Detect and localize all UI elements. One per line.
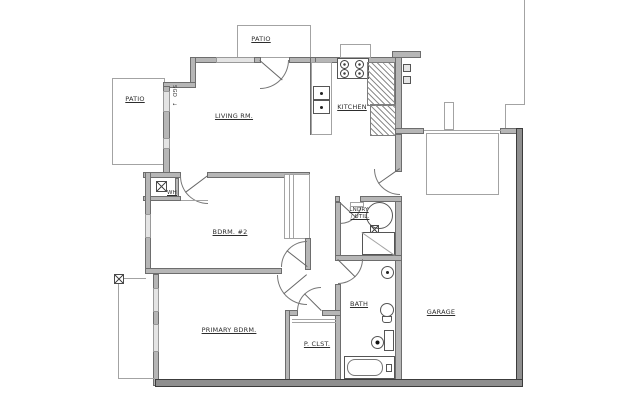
kitchen-sink-icon <box>313 86 330 100</box>
electrical-meter-icon <box>114 274 124 284</box>
stove-burner-icon <box>355 69 364 78</box>
yard-line-h <box>124 278 146 279</box>
bedroom2-label: BDRM. #2 <box>213 228 248 236</box>
patio-door-label: SGD <box>171 85 177 97</box>
primary-bedroom-label: PRIMARY BDRM. <box>202 326 257 334</box>
floor-plan-canvas: PATIO PATIO SGD ↓ LIVING RM. KITCHEN GAR… <box>0 0 626 405</box>
patio-top-outline <box>237 25 311 58</box>
patio-left-outline <box>112 78 165 165</box>
property-line-step-h <box>505 104 525 105</box>
patio-slider-window-a <box>163 91 170 112</box>
bath-label: BATH <box>350 300 368 308</box>
toilet-tank-icon <box>382 316 392 323</box>
primary-window-b <box>153 324 159 352</box>
closet-slider-track <box>293 175 294 238</box>
utility-meter-icon <box>403 76 411 84</box>
garage-door-header <box>424 130 501 131</box>
kitchen-label: KITCHEN <box>337 103 367 111</box>
pclst-shelf-line <box>292 319 336 320</box>
garage-label: GARAGE <box>427 308 455 316</box>
pclst-shelf-line <box>292 322 336 323</box>
water-heater-unit-icon <box>156 181 167 192</box>
yard-line-v <box>118 284 119 379</box>
bedroom2-window <box>145 214 151 238</box>
laundry-label-line2: / UTIL. <box>351 214 370 220</box>
east-exterior-wall <box>516 128 523 387</box>
bedroom2-closet <box>284 174 310 239</box>
vanity-sink-icon <box>371 336 384 349</box>
toilet-bowl-icon <box>380 303 394 317</box>
patio-left-label: PATIO <box>125 95 144 103</box>
stove-burner-icon <box>355 60 364 69</box>
stove-burner-icon <box>340 60 349 69</box>
garage-west-wall-lower <box>395 196 402 386</box>
laundry-label-line1: LNDRY <box>349 207 368 213</box>
garage-post-outline <box>444 102 454 130</box>
yard-line-bottom <box>118 378 155 379</box>
stove-burner-icon <box>340 69 349 78</box>
bath-west-wall <box>335 284 341 386</box>
bathtub-basin-icon <box>347 359 383 376</box>
laundry-west-wall <box>335 202 341 258</box>
utility-meter-icon <box>403 64 411 72</box>
pclst-west-wall <box>285 310 290 386</box>
property-line-step-v <box>505 104 506 130</box>
kitchen-sink-icon <box>313 100 330 114</box>
bath-vanity-icon <box>384 330 394 351</box>
living-room-window <box>216 57 255 63</box>
slide-direction-arrow-icon: ↓ <box>171 102 177 107</box>
water-heater-label: WH <box>167 190 177 196</box>
south-exterior-wall <box>155 379 523 387</box>
kitchen-counter-hatched <box>367 62 395 106</box>
kitchen-east-wall <box>395 57 402 135</box>
pclst-north-wall-b <box>322 310 341 316</box>
door-sill-line <box>181 200 208 201</box>
primary-closet-label: P. CLST. <box>304 340 330 348</box>
stove-bumpout-outline <box>340 44 371 58</box>
bedroom2-south-wall <box>145 268 282 274</box>
garage-west-wall-upper <box>395 134 402 172</box>
bathtub-faucet-icon <box>386 364 392 372</box>
primary-window-a <box>153 288 159 312</box>
property-line-right <box>524 0 525 105</box>
patio-slider-window-b <box>163 138 170 149</box>
closet-slider-track <box>289 175 290 238</box>
patio-top-label: PATIO <box>251 35 270 43</box>
living-room-label: LIVING RM. <box>215 112 253 120</box>
refrigerator-icon <box>370 104 396 136</box>
garage-door-panel <box>426 133 499 195</box>
pedestal-sink-icon <box>381 266 394 279</box>
